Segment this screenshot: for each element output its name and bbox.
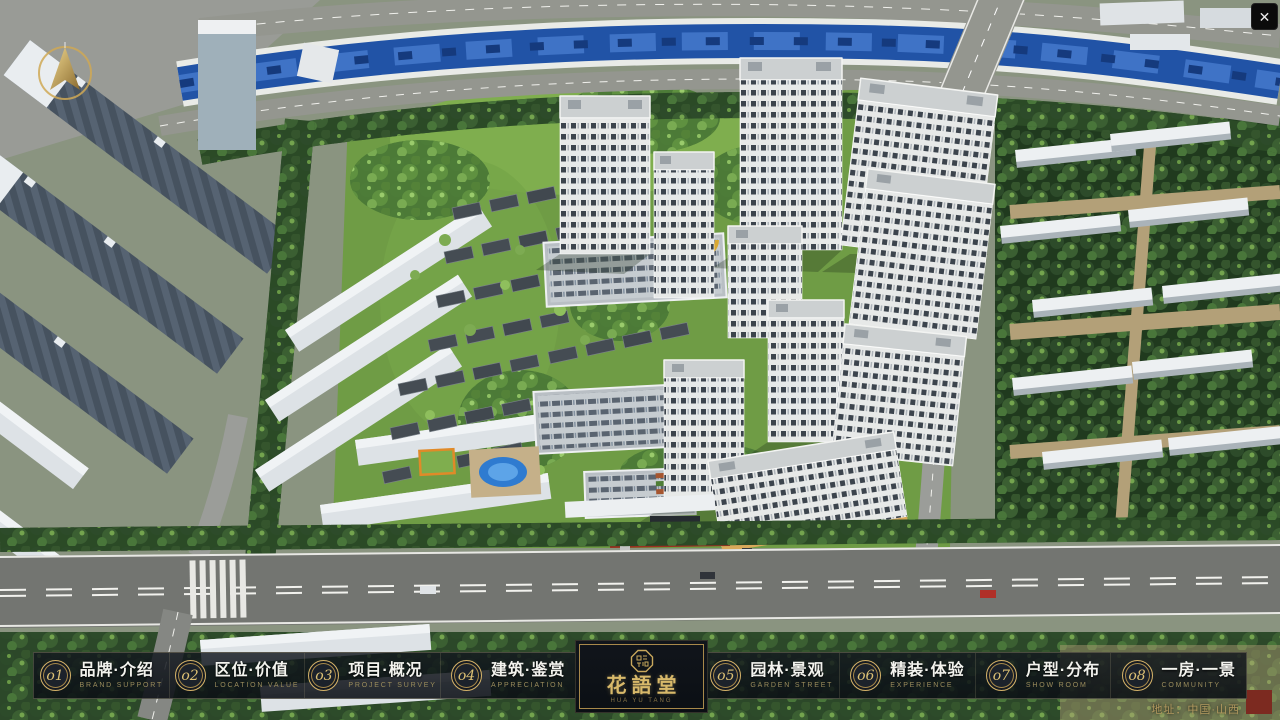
nav-label-zh: 项目·概况 [348, 662, 422, 680]
project-tagline: HUA YU TANG [610, 698, 672, 704]
roadside-trees [0, 528, 1280, 540]
nav-label-zh: 户型·分布 [1026, 662, 1100, 680]
nav-item-garden-landscape[interactable]: o5 园林·景观GARDEN STREET [704, 653, 840, 698]
nav-number-badge: o4 [451, 660, 482, 691]
nav-number-badge: o5 [710, 660, 741, 691]
nav-label-en: PROJECT SURVEY [348, 682, 436, 689]
nav-label-en: BRAND SUPPORT [80, 682, 164, 689]
nav-number-badge: o6 [850, 660, 881, 691]
nav-label-zh: 园林·景观 [750, 662, 824, 680]
masterplan-render [0, 0, 1280, 720]
nav-label-en: SHOW ROOM [1026, 682, 1088, 689]
nav-label-zh: 一房·一景 [1162, 662, 1236, 680]
nav-label-zh: 区位·价值 [215, 662, 289, 680]
nav-label-zh: 建筑·鉴赏 [491, 662, 565, 680]
project-name: 花語堂 [602, 675, 682, 695]
nav-number-badge: o7 [986, 660, 1017, 691]
nav-item-brand-intro[interactable]: o1 品牌·介绍BRAND SUPPORT [33, 653, 169, 698]
nav-label-en: GARDEN STREET [750, 682, 833, 689]
nav-item-floorplan-distribution[interactable]: o7 户型·分布SHOW ROOM [975, 653, 1111, 698]
nav-label-en: LOCATION VALUE [215, 682, 300, 689]
compass-icon [34, 42, 96, 104]
project-logo-panel[interactable]: 花語堂 HUA YU TANG [575, 640, 708, 713]
address-label: 地址：中国·山西 [1151, 701, 1240, 717]
nav-item-location-value[interactable]: o2 区位·价值LOCATION VALUE [169, 653, 305, 698]
nav-item-project-overview[interactable]: o3 项目·概况PROJECT SURVEY [304, 653, 440, 698]
nav-label-en: EXPERIENCE [890, 682, 953, 689]
nav-number-badge: o1 [40, 660, 71, 691]
nav-number-badge: o2 [175, 660, 206, 691]
nav-item-architecture[interactable]: o4 建筑·鉴赏APPRECIATION [440, 653, 576, 698]
nav-number-badge: o8 [1122, 660, 1153, 691]
nav-number-badge: o3 [308, 660, 339, 691]
nav-item-interior-experience[interactable]: o6 精装·体验EXPERIENCE [839, 653, 975, 698]
nav-label-en: APPRECIATION [491, 682, 564, 689]
east-district [995, 118, 1280, 540]
close-button[interactable]: ✕ [1251, 3, 1278, 30]
nav-item-room-view[interactable]: o8 一房·一景COMMUNITY [1110, 653, 1247, 698]
nav-label-zh: 品牌·介绍 [80, 662, 154, 680]
app-screen: ✕ o1 品牌·介绍BRAND SUPPORT o2 区位·价值LOCATION… [0, 0, 1280, 720]
seal-icon [630, 649, 654, 673]
nav-label-en: COMMUNITY [1162, 682, 1221, 689]
nav-label-zh: 精装·体验 [890, 662, 964, 680]
